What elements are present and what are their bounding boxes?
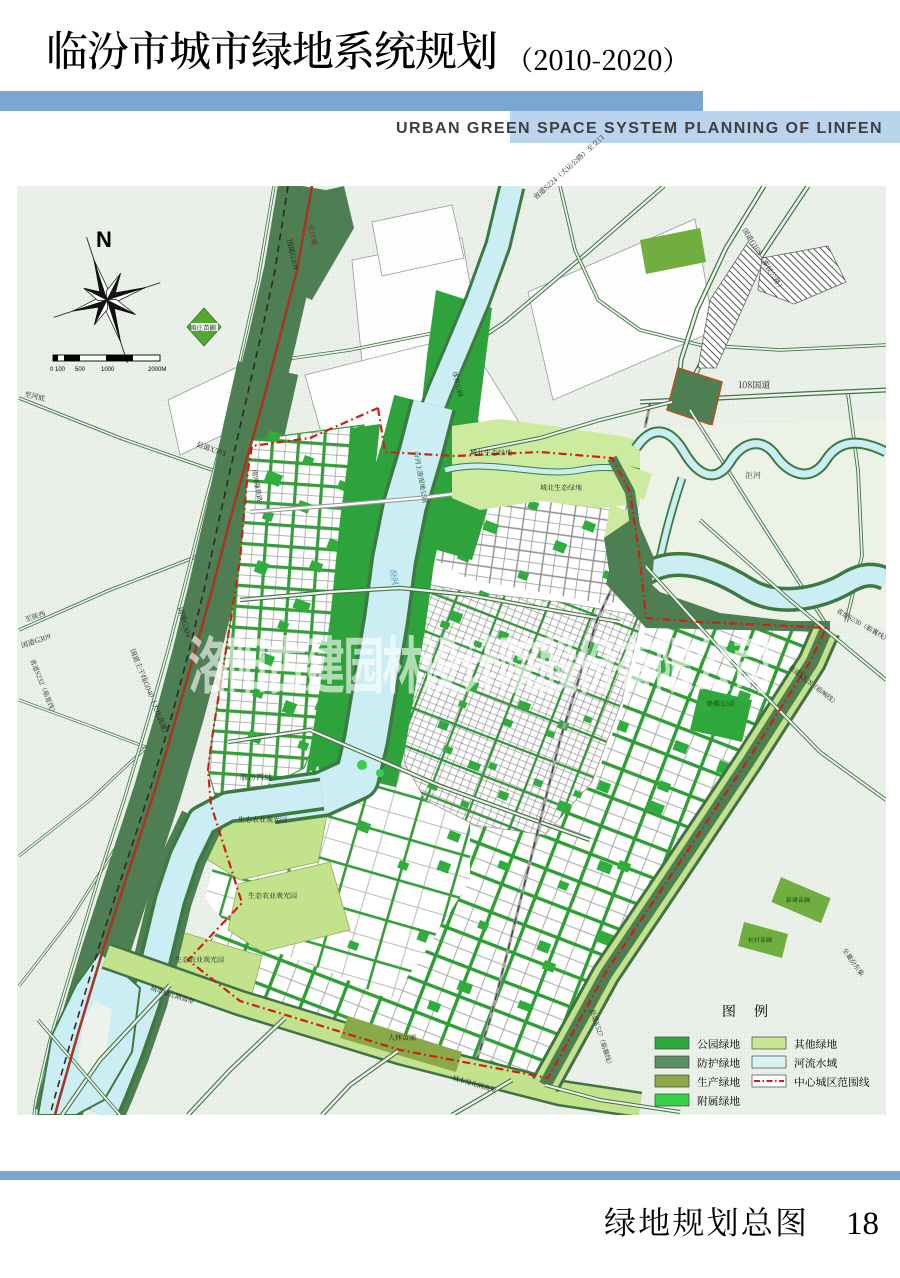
svg-text:URBAN GREEN SPACE SYSTEM PLANN: URBAN GREEN SPACE SYSTEM PLANNING OF LIN… [396, 120, 883, 137]
svg-text:500: 500 [75, 367, 86, 373]
svg-text:2000M: 2000M [148, 367, 166, 373]
svg-text:0 100: 0 100 [50, 367, 66, 373]
svg-text:1000: 1000 [101, 367, 115, 373]
svg-text:N: N [96, 227, 112, 252]
svg-text:18: 18 [846, 1206, 879, 1242]
